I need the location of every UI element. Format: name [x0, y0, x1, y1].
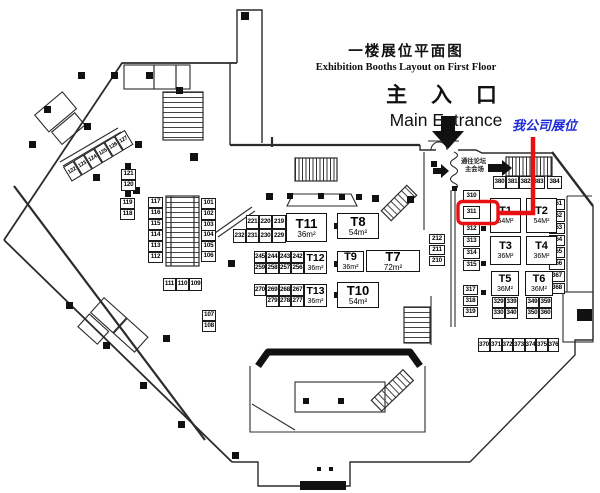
- title-block: 一楼展位平面图 Exhibition Booths Layout on Firs…: [300, 40, 512, 73]
- forum-sign: 通往论坛 主会场: [461, 158, 505, 174]
- page-title-en: Exhibition Booths Layout on First Floor: [300, 62, 512, 73]
- main-entrance-block: 主 入 口 Main Entrance: [360, 79, 532, 131]
- main-entrance-zh: 主 入 口: [360, 79, 532, 109]
- company-booth-callout: 我公司展位: [512, 115, 577, 134]
- forum-sign-line2: 主会场: [461, 166, 505, 174]
- floor-plan: 122123124125126127 121120119118117116115…: [0, 0, 600, 493]
- forum-sign-line1: 通往论坛: [461, 158, 486, 165]
- page-title-zh: 一楼展位平面图: [300, 40, 512, 61]
- label-layer: 一楼展位平面图 Exhibition Booths Layout on Firs…: [0, 0, 600, 493]
- main-entrance-en: Main Entrance: [360, 110, 532, 131]
